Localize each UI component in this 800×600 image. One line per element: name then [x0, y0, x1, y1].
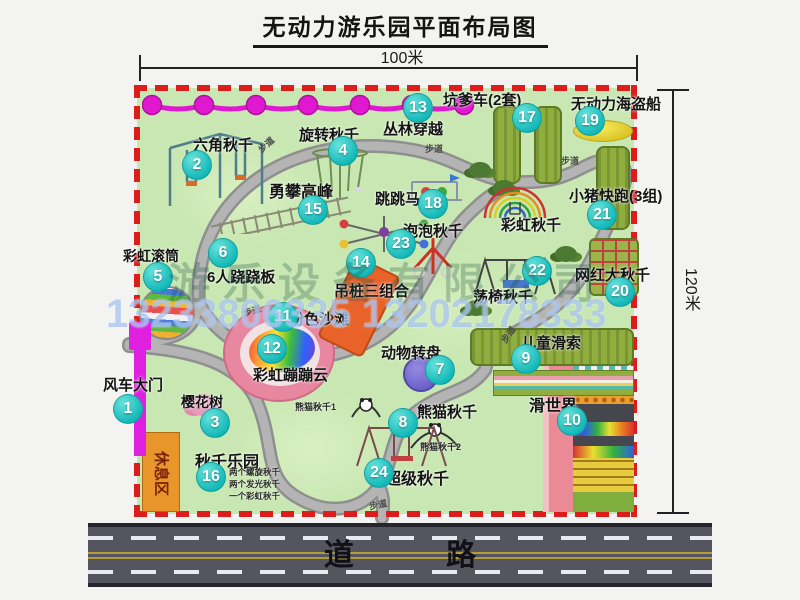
attraction-badge: 16	[196, 462, 226, 492]
attraction-label: 熊猫秋千	[417, 401, 477, 422]
attraction-label: 荡椅秋千	[473, 286, 533, 307]
road-label: 道 路	[0, 530, 800, 574]
attraction-badge: 11	[268, 302, 298, 332]
rest-area: 休息区	[142, 432, 180, 512]
slide-strip	[573, 492, 634, 512]
width-dimension-tick-left	[139, 55, 141, 81]
attraction-label: 彩虹秋千	[501, 214, 561, 235]
attraction-label: 吊桩三组合	[334, 280, 409, 301]
slide-strip	[573, 436, 634, 446]
attraction-badge: 21	[587, 200, 617, 230]
attraction-label: 彩虹蹦蹦云	[253, 364, 328, 385]
attraction-badge: 14	[346, 248, 376, 278]
panda-swing-2-label: 熊猫秋千2	[420, 440, 461, 453]
attraction-badge: 24	[364, 458, 394, 488]
attraction-label: 风车大门	[103, 374, 163, 395]
swing-park-note: 两个发光秋千	[229, 478, 280, 490]
page-title: 无动力游乐园平面布局图	[253, 8, 548, 48]
attraction-label: 超级秋千	[385, 465, 449, 489]
height-dimension-label: 120米	[678, 268, 702, 311]
attraction-badge: 5	[143, 262, 173, 292]
attraction-label: 坑爹车(2套)	[443, 89, 521, 110]
swing-park-note: 两个螺旋秋千	[229, 466, 280, 478]
height-dimension-line	[672, 90, 674, 514]
attraction-label: 粉色沙滩	[289, 308, 349, 329]
attraction-badge: 13	[403, 93, 433, 123]
windmill-gate-icon	[129, 322, 151, 350]
park-plan-screenshot: 无动力游乐园平面布局图 100米 120米	[0, 0, 800, 600]
attraction-badge: 3	[200, 408, 230, 438]
walkway-label: 步道	[561, 154, 579, 167]
walkway-label: 步道	[425, 142, 443, 155]
attraction-label: 小猪快跑(3组)	[569, 185, 662, 206]
attraction-badge: 23	[386, 229, 416, 259]
park-map: 步道 步道 步道 步道 步道 步道 风车大门 1 六角秋千 2 樱花树 3	[137, 88, 634, 514]
width-dimension-label: 100米	[352, 44, 452, 68]
attraction-badge: 18	[418, 189, 448, 219]
attraction-badge: 17	[512, 103, 542, 133]
attraction-badge: 22	[522, 256, 552, 286]
attraction-badge: 12	[257, 334, 287, 364]
slide-strip-rainbow	[573, 446, 634, 458]
panda-swing-icon	[349, 391, 383, 419]
rest-area-label: 休息区	[152, 449, 173, 499]
attraction-badge: 2	[182, 150, 212, 180]
width-dimension-line	[140, 67, 637, 69]
title-wrap: 无动力游乐园平面布局图	[0, 8, 800, 48]
attraction-badge: 7	[425, 355, 455, 385]
attraction-badge: 4	[328, 136, 358, 166]
attraction-badge: 20	[605, 277, 635, 307]
attraction-badge: 9	[511, 344, 541, 374]
attraction-label: 跳跳马	[375, 188, 420, 209]
slide-strip-wavy	[573, 458, 634, 492]
height-dimension-tick-top	[657, 89, 689, 91]
attraction-badge: 10	[557, 406, 587, 436]
attraction-badge: 1	[113, 394, 143, 424]
attraction-badge: 15	[298, 195, 328, 225]
attraction-badge: 6	[208, 238, 238, 268]
attraction-label: 6人跷跷板	[207, 266, 275, 287]
panda-swing-1-label: 熊猫秋千1	[295, 400, 336, 413]
swing-park-note: 一个彩虹秋千	[229, 490, 280, 502]
attraction-badge: 19	[575, 106, 605, 136]
height-dimension-tick-bottom	[657, 512, 689, 514]
attraction-badge: 8	[388, 408, 418, 438]
width-dimension-tick-right	[636, 55, 638, 81]
